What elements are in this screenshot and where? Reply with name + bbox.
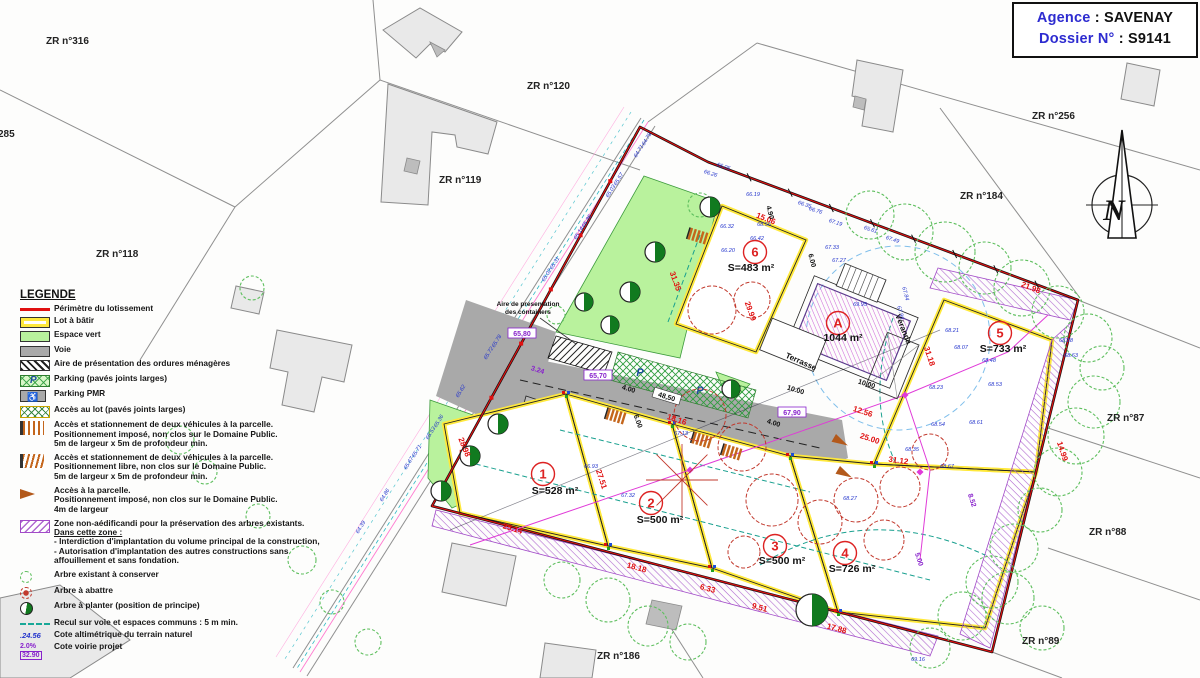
- north-arrow: N: [1086, 130, 1158, 238]
- elevation-label: 67.49: [885, 235, 900, 245]
- legend-item-label: Voie: [54, 345, 71, 354]
- road-level-cote: 65,70: [589, 373, 607, 380]
- elevation-label: 68.21: [945, 328, 959, 334]
- elevation-label: 68.88: [1059, 338, 1074, 344]
- legend-swatch-parking-icon: P: [20, 375, 54, 387]
- parcel-label: ZR n°118: [96, 249, 138, 260]
- legend-item: Accès au lot (pavés joints larges): [20, 405, 356, 418]
- lot-area: S=500 m²: [637, 514, 684, 526]
- legend-item-label: Lot à bâtir: [54, 316, 94, 325]
- elevation-label: 65.02: [541, 268, 553, 283]
- legend-item-label: Accès à la parcelle.Positionnement impos…: [54, 486, 278, 514]
- agency-label: Agence: [1037, 10, 1091, 26]
- legend-item: Lot à bâtir: [20, 316, 356, 328]
- legend-swatch-road-icon: [20, 346, 54, 357]
- legend-item: Recul sur voie et espaces communs : 5 m …: [20, 618, 356, 627]
- legend-item-label: Zone non-aédificandi pour la préservatio…: [54, 519, 320, 565]
- elevation-label: 64.86: [379, 487, 392, 503]
- legend-item: PParking (pavés joints larges): [20, 374, 356, 387]
- legend-item: Voie: [20, 345, 356, 357]
- plan-label: Aire de présentation: [497, 301, 560, 308]
- svg-text:P: P: [696, 385, 704, 397]
- legend-item-label: Espace vert: [54, 330, 101, 339]
- legend-swatch-bars-icon: [20, 421, 54, 435]
- legend-item: Arbre à planter (position de principe): [20, 601, 356, 615]
- lot-number: 2: [647, 496, 654, 511]
- existing-tree-icon: [586, 578, 630, 622]
- legend-swatch-bars-m-icon: [20, 454, 54, 468]
- legend-item: Accès à la parcelle.Positionnement impos…: [20, 486, 356, 514]
- legend-swatch-access-lot-icon: [20, 406, 54, 418]
- elevation-label: 69.16: [911, 657, 926, 663]
- legend-item: .24.56Cote altimétrique du terrain natur…: [20, 630, 356, 640]
- elevation-label: 65.71: [411, 444, 423, 459]
- parcel-label: ZR n°89: [1022, 636, 1059, 647]
- legend-swatch-green-icon: [20, 331, 54, 342]
- legend-item-label: Accès et stationnement de deux véhicules…: [54, 453, 273, 481]
- elevation-label: 68.67: [940, 464, 955, 470]
- parcel-label: 285: [0, 129, 15, 140]
- dimension-label: 6.00: [806, 253, 816, 268]
- existing-tree-icon: [355, 629, 381, 655]
- legend-swatch-lot-icon: [20, 317, 54, 328]
- dossier-label: Dossier N°: [1039, 31, 1115, 47]
- legend-item: Arbre existant à conserver: [20, 570, 356, 583]
- legend-item-label: Recul sur voie et espaces communs : 5 m …: [54, 618, 238, 627]
- elevation-label: 68.48: [982, 358, 997, 364]
- legend-item-label: Périmètre du lotissement: [54, 304, 153, 313]
- elevation-label: 67.84: [900, 286, 909, 301]
- legend-item: Espace vert: [20, 330, 356, 342]
- elevation-label: 66.05: [716, 162, 732, 172]
- dimension-label: 25.00: [859, 431, 881, 446]
- elevation-label: 67.32: [621, 493, 635, 499]
- legend-swatch-perimeter-icon: [20, 305, 54, 311]
- elevation-label: 66.93: [584, 464, 599, 470]
- legend-swatch-zone-icon: [20, 520, 54, 533]
- legend-item-label: Arbre à planter (position de principe): [54, 601, 200, 610]
- elevation-label: 68.53: [988, 382, 1003, 388]
- elevation-label: 68.07: [954, 345, 969, 351]
- legend-swatch-cote-road-icon: 2.0%32.90: [20, 643, 54, 660]
- lot-number: 1: [539, 467, 546, 482]
- parcel-label: ZR n°316: [46, 36, 89, 47]
- dimension-label: 14.99: [1055, 440, 1070, 462]
- elevation-label: 65.61: [863, 225, 878, 235]
- elevation-label: 68.23: [929, 385, 944, 391]
- legend-item-label: Arbre à abattre: [54, 586, 113, 595]
- lot-area: S=500 m²: [759, 555, 806, 567]
- site-plan-page: PP♿ 1S=528 m²2S=500 m²3S=500 m²4S=726 m²…: [0, 0, 1200, 678]
- elevation-label: 67.19: [828, 218, 843, 228]
- parcel-label: ZR n°256: [1032, 111, 1075, 122]
- elevation-label: 67.33: [825, 245, 840, 251]
- lot-number: 3: [771, 539, 778, 554]
- legend-item: 2.0%32.90Cote voirie projet: [20, 642, 356, 660]
- elevation-label: 69.95: [853, 302, 868, 308]
- legend-title: LEGENDE: [20, 289, 356, 301]
- legend-swatch-pmr-icon: ♿: [20, 390, 54, 402]
- existing-tree-icon: [1080, 346, 1124, 390]
- legend-item-label: Accès au lot (pavés joints larges): [54, 405, 185, 414]
- elevation-label: 68.61: [969, 420, 983, 426]
- dossier-value: S9141: [1128, 31, 1171, 47]
- legend-item-label: Accès et stationnement de deux véhicules…: [54, 420, 278, 448]
- legend-item: Accès et stationnement de deux véhicules…: [20, 453, 356, 481]
- lot-number: 4: [841, 546, 849, 561]
- existing-tree-icon: [544, 562, 580, 598]
- north-letter: N: [1102, 194, 1126, 227]
- legend-item: Zone non-aédificandi pour la préservatio…: [20, 519, 356, 565]
- parcel-label: ZR n°184: [960, 191, 1003, 202]
- elevation-label: 66.26: [703, 169, 719, 179]
- elevation-label: 68.27: [843, 496, 858, 502]
- agency-line: Agence : SAVENAY: [1022, 8, 1188, 29]
- agency-value: SAVENAY: [1104, 10, 1173, 26]
- legend-item-label: Parking PMR: [54, 389, 105, 398]
- parcel-label: ZR n°88: [1089, 527, 1126, 538]
- svg-text:P: P: [636, 367, 644, 379]
- elevation-label: 66.20: [721, 248, 736, 254]
- parcel-label: ZR n°186: [597, 651, 640, 662]
- legend-swatch-tree-plant-icon: [20, 602, 54, 615]
- elevation-label: 66.76: [808, 206, 824, 216]
- elevation-label: 65.31: [549, 256, 561, 271]
- elevation-label: 64.39: [355, 520, 367, 535]
- subdivision-site: PP♿: [428, 127, 1078, 656]
- legend-item: ♿Parking PMR: [20, 389, 356, 402]
- legend-item-label: Cote voirie projet: [54, 642, 122, 651]
- legend-item: Périmètre du lotissement: [20, 304, 356, 313]
- lot-area: S=726 m²: [829, 563, 876, 575]
- parcel-label: ZR n°87: [1107, 413, 1144, 424]
- parcel-label: ZR n°119: [439, 175, 481, 186]
- elevation-label: 68.63: [1064, 353, 1079, 359]
- lot-area: 1044 m²: [823, 332, 863, 344]
- legend-item-label: Cote altimétrique du terrain naturel: [54, 630, 192, 639]
- elevation-label: 64.71: [633, 144, 645, 159]
- legend-item: Accès et stationnement de deux véhicules…: [20, 420, 356, 448]
- legend-swatch-arrow-icon: [20, 487, 54, 499]
- legend-swatch-waste-icon: [20, 360, 54, 371]
- dead-tree-icon: [646, 444, 718, 516]
- legend-item-label: Arbre existant à conserver: [54, 570, 159, 579]
- elevation-label: 68.35: [905, 447, 920, 453]
- parcel-label: ZR n°120: [527, 81, 570, 92]
- lot-number: 6: [751, 245, 758, 260]
- legend-swatch-tree-keep-icon: [20, 571, 54, 583]
- legend-swatch-setback-icon: [20, 619, 54, 625]
- title-block: Agence : SAVENAY Dossier N° : S9141: [1012, 2, 1198, 58]
- elevation-label: 66.42: [750, 236, 764, 242]
- legend-item-label: Parking (pavés joints larges): [54, 374, 167, 383]
- legend-rows: Périmètre du lotissementLot à bâtirEspac…: [20, 304, 356, 660]
- existing-tree-icon: [877, 204, 933, 260]
- elevation-label: 67.27: [832, 258, 847, 264]
- elevation-label: 68.56: [757, 222, 772, 228]
- legend-swatch-cote-alt-icon: .24.56: [20, 631, 54, 640]
- road-level-cote: 67,90: [783, 410, 801, 417]
- dossier-line: Dossier N° : S9141: [1022, 29, 1188, 50]
- lot-number: 5: [996, 326, 1003, 341]
- lot-area: S=483 m²: [728, 262, 775, 274]
- elevation-label: 66.32: [720, 224, 734, 230]
- elevation-label: 68.54: [931, 422, 945, 428]
- plan-label: des containers: [505, 309, 551, 316]
- legend-panel: LEGENDE Périmètre du lotissementLot à bâ…: [20, 289, 356, 663]
- legend-item: Arbre à abattre: [20, 586, 356, 599]
- lot-area: S=733 m²: [980, 343, 1027, 355]
- lot-area: S=528 m²: [532, 485, 579, 497]
- legend-item-label: Aire de présentation des ordures ménagèr…: [54, 359, 230, 368]
- elevation-label: 67.13: [674, 431, 689, 437]
- road-level-cote: 65,80: [513, 331, 531, 338]
- legend-item: Aire de présentation des ordures ménagèr…: [20, 359, 356, 371]
- elevation-label: 66.19: [746, 192, 760, 198]
- lot-number: A: [833, 316, 843, 331]
- legend-swatch-tree-cut-icon: [20, 587, 54, 599]
